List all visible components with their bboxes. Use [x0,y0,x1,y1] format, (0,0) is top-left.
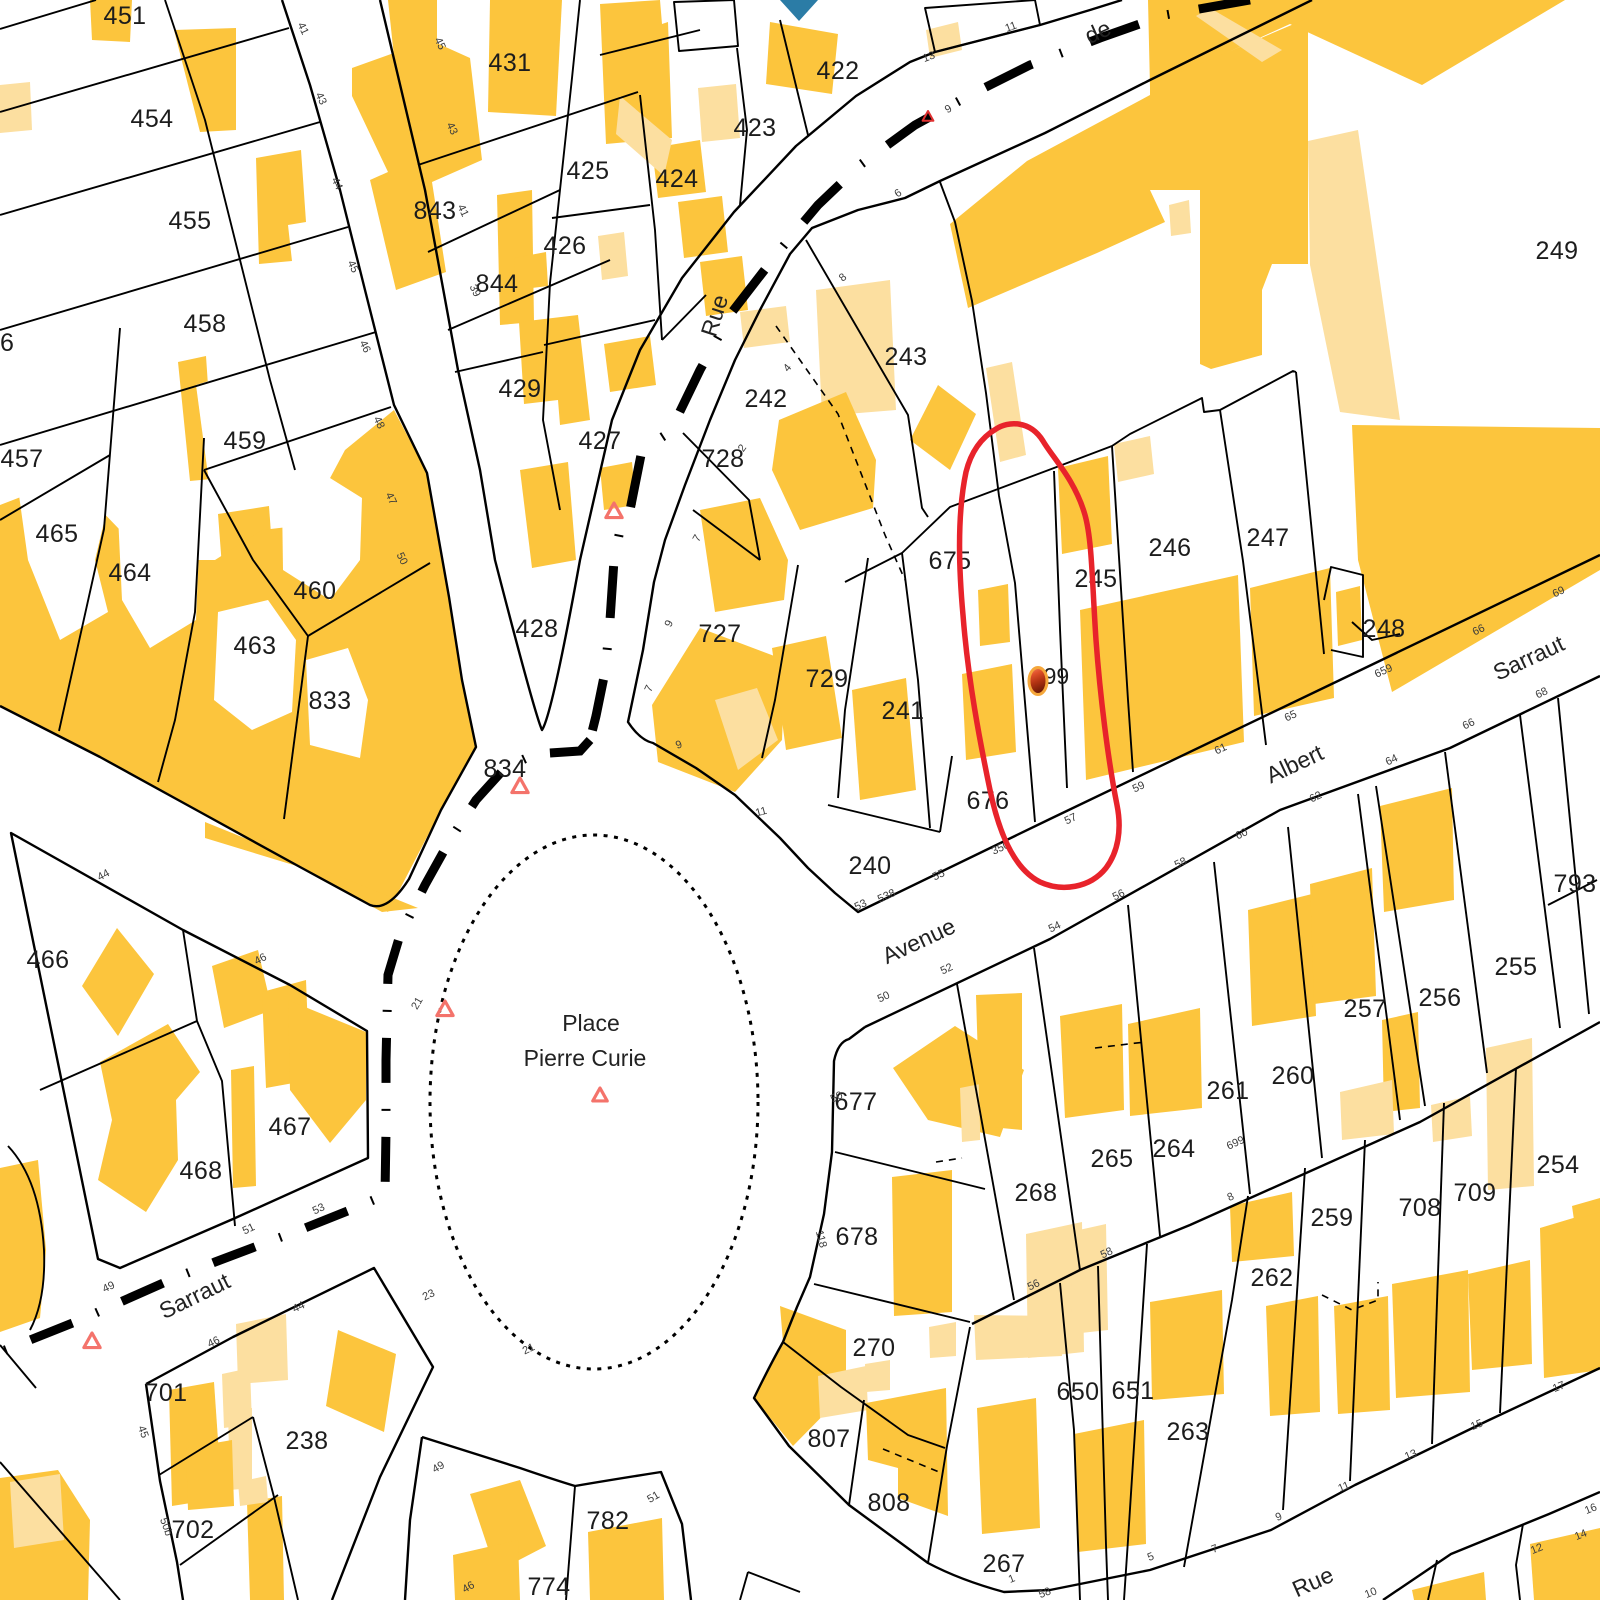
svg-text:467: 467 [269,1113,312,1141]
svg-text:702: 702 [172,1516,215,1544]
svg-text:256: 256 [1419,984,1462,1012]
svg-text:833: 833 [309,687,352,715]
svg-text:270: 270 [853,1334,896,1362]
svg-text:463: 463 [234,632,277,660]
svg-text:460: 460 [294,577,337,605]
svg-text:267: 267 [983,1550,1026,1578]
svg-text:238: 238 [286,1427,329,1455]
svg-text:729: 729 [806,665,849,693]
svg-text:257: 257 [1344,995,1387,1023]
svg-text:264: 264 [1153,1135,1196,1163]
svg-text:793: 793 [1554,870,1597,898]
svg-text:457: 457 [1,445,44,473]
svg-text:675: 675 [929,547,972,575]
svg-text:424: 424 [656,165,699,193]
svg-text:242: 242 [745,385,788,413]
svg-text:Pierre Curie: Pierre Curie [524,1045,647,1071]
svg-text:458: 458 [184,310,227,338]
svg-text:265: 265 [1091,1145,1134,1173]
svg-text:247: 247 [1247,524,1290,552]
svg-text:468: 468 [180,1157,223,1185]
svg-text:774: 774 [528,1573,571,1600]
svg-text:454: 454 [131,105,174,133]
svg-text:56: 56 [0,329,14,357]
svg-text:464: 464 [109,559,152,587]
svg-text:808: 808 [868,1489,911,1517]
svg-text:423: 423 [734,114,777,142]
svg-text:261: 261 [1207,1077,1250,1105]
svg-text:650: 650 [1057,1378,1100,1406]
svg-text:241: 241 [882,697,925,725]
svg-text:451: 451 [104,2,147,30]
svg-text:240: 240 [849,852,892,880]
svg-text:466: 466 [27,946,70,974]
svg-text:268: 268 [1015,1179,1058,1207]
svg-text:425: 425 [567,157,610,185]
svg-text:429: 429 [499,375,542,403]
svg-text:249: 249 [1536,237,1579,265]
svg-text:678: 678 [836,1223,879,1251]
svg-text:651: 651 [1112,1377,1155,1405]
svg-text:426: 426 [544,232,587,260]
svg-text:243: 243 [885,343,928,371]
svg-text:Place: Place [562,1010,620,1036]
svg-text:807: 807 [808,1425,851,1453]
svg-text:701: 701 [145,1379,188,1407]
svg-text:782: 782 [587,1507,630,1535]
svg-text:422: 422 [817,57,860,85]
svg-text:727: 727 [699,620,742,648]
svg-text:709: 709 [1454,1179,1497,1207]
svg-text:246: 246 [1149,534,1192,562]
svg-text:428: 428 [516,615,559,643]
svg-text:455: 455 [169,207,212,235]
svg-text:254: 254 [1537,1151,1580,1179]
svg-text:260: 260 [1272,1062,1315,1090]
svg-text:843: 843 [414,197,457,225]
svg-text:427: 427 [579,427,622,455]
svg-text:259: 259 [1311,1204,1354,1232]
svg-text:465: 465 [36,520,79,548]
svg-text:255: 255 [1495,953,1538,981]
svg-text:708: 708 [1399,1194,1442,1222]
svg-text:431: 431 [489,49,532,77]
svg-text:263: 263 [1167,1418,1210,1446]
svg-text:248: 248 [1363,615,1406,643]
svg-text:262: 262 [1251,1264,1294,1292]
svg-text:245: 245 [1075,565,1118,593]
svg-text:459: 459 [224,427,267,455]
